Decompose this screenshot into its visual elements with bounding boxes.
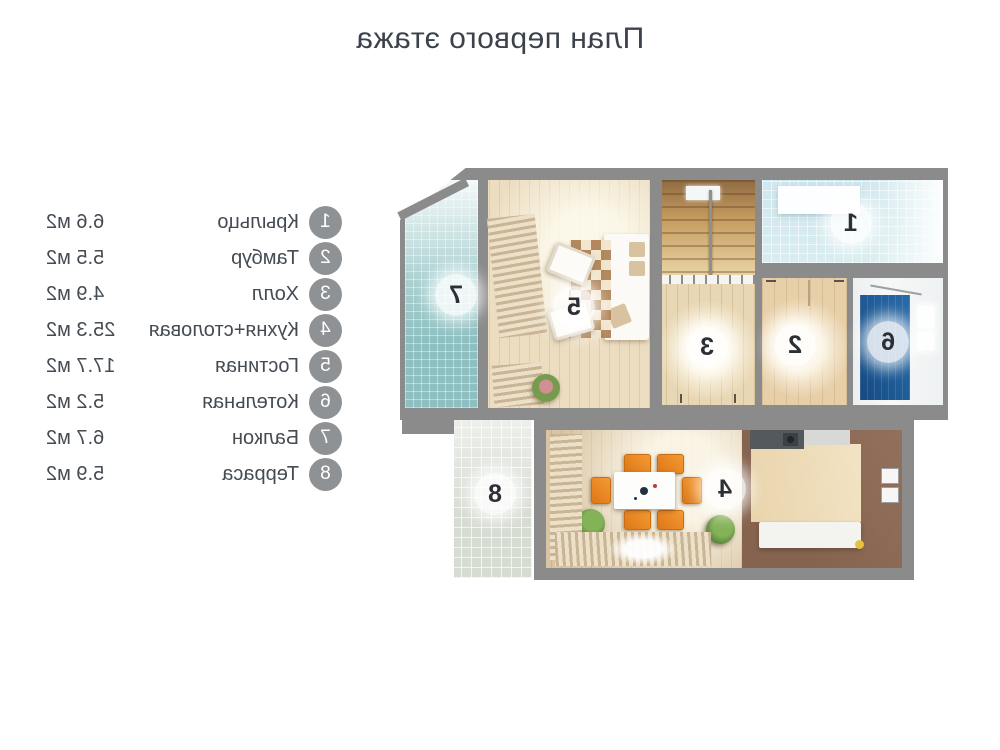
floor-plan: 1 2 3 4 5 6 7 8 — [400, 168, 948, 580]
legend-number-badge: 2 — [309, 242, 342, 275]
legend-room-area: 5.9 м2 — [46, 463, 104, 486]
room-number-badge: 2 — [774, 324, 816, 366]
legend-row: 6 Котельная 5.2 м2 — [46, 384, 342, 420]
stove-burner — [783, 433, 798, 446]
legend-row: 7 Балкон 6.7 м2 — [46, 420, 342, 456]
table-decor — [653, 484, 657, 488]
legend: 1 Крыльцо 6.6 м2 2 Тамбур 5.5 м2 3 Холл … — [46, 204, 342, 492]
legend-room-label: Гостиная — [215, 355, 299, 378]
window-light — [918, 332, 934, 350]
room-number-badge: 4 — [704, 468, 746, 510]
dining-table — [614, 472, 675, 509]
flower-pot — [855, 540, 864, 549]
dining-chair — [657, 454, 684, 474]
kitchen-counter — [759, 522, 861, 548]
legend-row: 4 Кухня+столовая 25.3 м2 — [46, 312, 342, 348]
door-leaf — [808, 280, 810, 306]
legend-number-badge: 1 — [309, 206, 342, 239]
legend-room-label: Терраса — [222, 463, 299, 486]
legend-room-area: 25.3 м2 — [46, 319, 115, 342]
legend-row: 5 Гостиная 17.7 м2 — [46, 348, 342, 384]
room-number-badge: 3 — [686, 326, 728, 368]
room-number-badge: 7 — [435, 274, 477, 316]
room-number-badge: 8 — [474, 473, 516, 515]
legend-room-area: 5.5 м2 — [46, 247, 104, 270]
legend-room-label: Балкон — [232, 427, 299, 450]
stair-skylight — [686, 186, 720, 200]
room-number-badge: 5 — [553, 286, 595, 328]
door-mark — [734, 394, 736, 403]
page-title: План первого этажа — [0, 22, 1000, 56]
sunlight-patch — [610, 534, 676, 564]
legend-number-badge: 3 — [309, 278, 342, 311]
door-mark — [834, 280, 844, 282]
legend-room-label: Котельная — [202, 391, 299, 414]
legend-room-label: Тамбур — [231, 247, 299, 270]
stair-landing-edge — [662, 275, 755, 284]
legend-room-label: Крыльцо — [217, 211, 299, 234]
legend-room-area: 5.2 м2 — [46, 391, 104, 414]
stair-railing — [709, 190, 712, 280]
legend-room-label: Кухня+столовая — [149, 319, 299, 342]
dining-chair — [624, 454, 651, 474]
sink — [881, 487, 899, 503]
mirrored-floorplan-page: План первого этажа 1 Крыльцо 6.6 м2 2 Та… — [0, 0, 1000, 750]
dining-chair — [624, 510, 651, 530]
legend-number-badge: 6 — [309, 386, 342, 419]
dining-chair — [682, 477, 702, 504]
room-number-badge: 6 — [867, 321, 909, 363]
legend-number-badge: 8 — [309, 458, 342, 491]
fridge — [804, 430, 850, 445]
legend-room-area: 17.7 м2 — [46, 355, 115, 378]
dining-chair — [591, 477, 611, 504]
legend-number-badge: 7 — [309, 422, 342, 455]
table-decor — [634, 497, 637, 500]
door-mark — [680, 394, 682, 403]
legend-row: 3 Холл 4.9 м2 — [46, 276, 342, 312]
sofa-cushion — [629, 261, 645, 276]
table-decor — [640, 487, 648, 495]
wall-stub — [402, 408, 454, 434]
legend-number-badge: 5 — [309, 350, 342, 383]
legend-row: 2 Тамбур 5.5 м2 — [46, 240, 342, 276]
legend-room-label: Холл — [252, 283, 299, 306]
legend-room-area: 4.9 м2 — [46, 283, 104, 306]
sofa-cushion — [629, 242, 645, 257]
legend-room-area: 6.7 м2 — [46, 427, 104, 450]
flower-bouquet — [532, 374, 560, 402]
dining-chair — [657, 510, 684, 530]
door-mark — [766, 280, 776, 282]
room-number-badge: 1 — [830, 202, 872, 244]
legend-room-area: 6.6 м2 — [46, 211, 104, 234]
window-light — [918, 306, 934, 328]
legend-row: 8 Терраса 5.9 м2 — [46, 456, 342, 492]
kitchen-light-floor — [751, 444, 861, 522]
legend-number-badge: 4 — [309, 314, 342, 347]
sink — [881, 468, 899, 484]
legend-row: 1 Крыльцо 6.6 м2 — [46, 204, 342, 240]
